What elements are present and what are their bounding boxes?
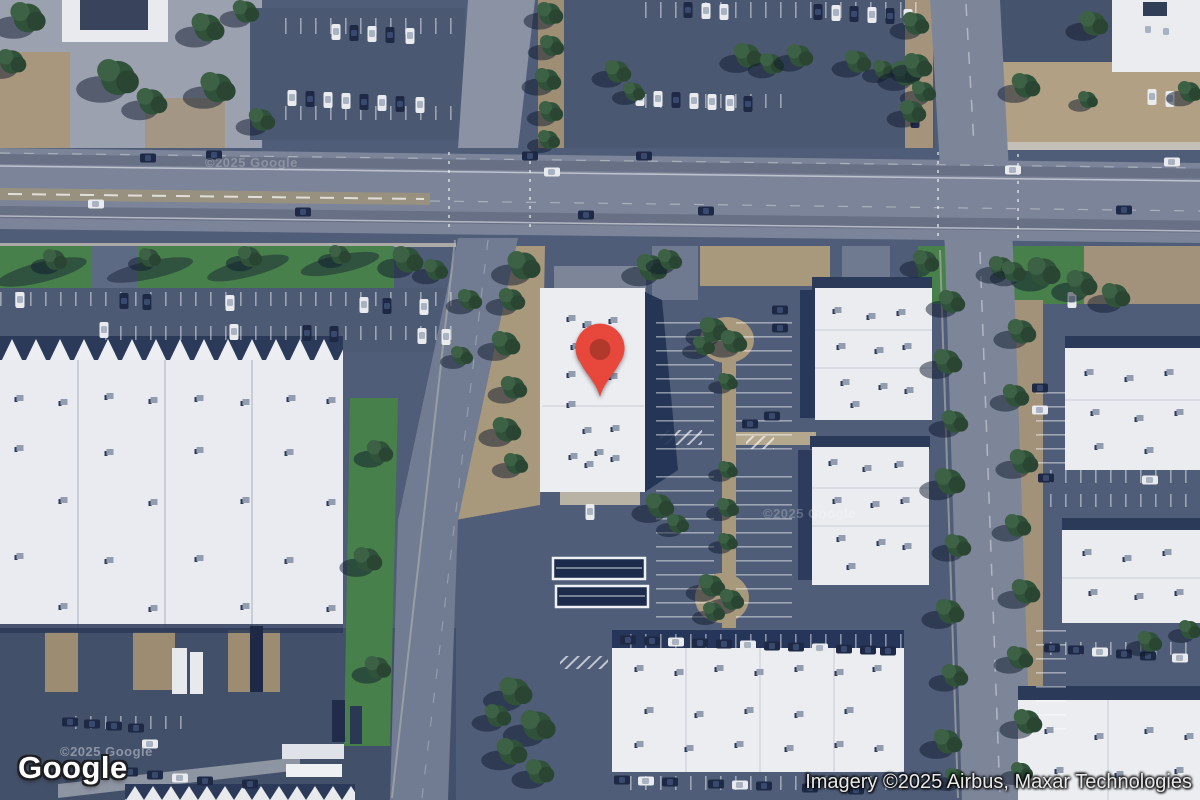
building-bottom-sliver xyxy=(125,784,355,800)
google-watermark: ©2025 Google xyxy=(205,155,298,170)
google-watermark: ©2025 Google xyxy=(763,506,856,521)
building-top-right xyxy=(1112,0,1200,72)
location-marker-icon[interactable] xyxy=(571,322,629,400)
building-top-left xyxy=(62,0,168,42)
map-canvas[interactable]: ©2025 Google ©2025 Google ©2025 Google G… xyxy=(0,0,1200,800)
building-right-2 xyxy=(1062,518,1200,623)
building-right-1 xyxy=(1065,336,1200,470)
imagery-attribution: Imagery ©2025 Airbus, Maxar Technologies xyxy=(805,771,1192,794)
building-center-a xyxy=(800,277,932,420)
pin-glyph xyxy=(571,322,629,400)
google-logo[interactable]: Google xyxy=(18,750,128,786)
building-left-warehouse xyxy=(0,336,343,633)
